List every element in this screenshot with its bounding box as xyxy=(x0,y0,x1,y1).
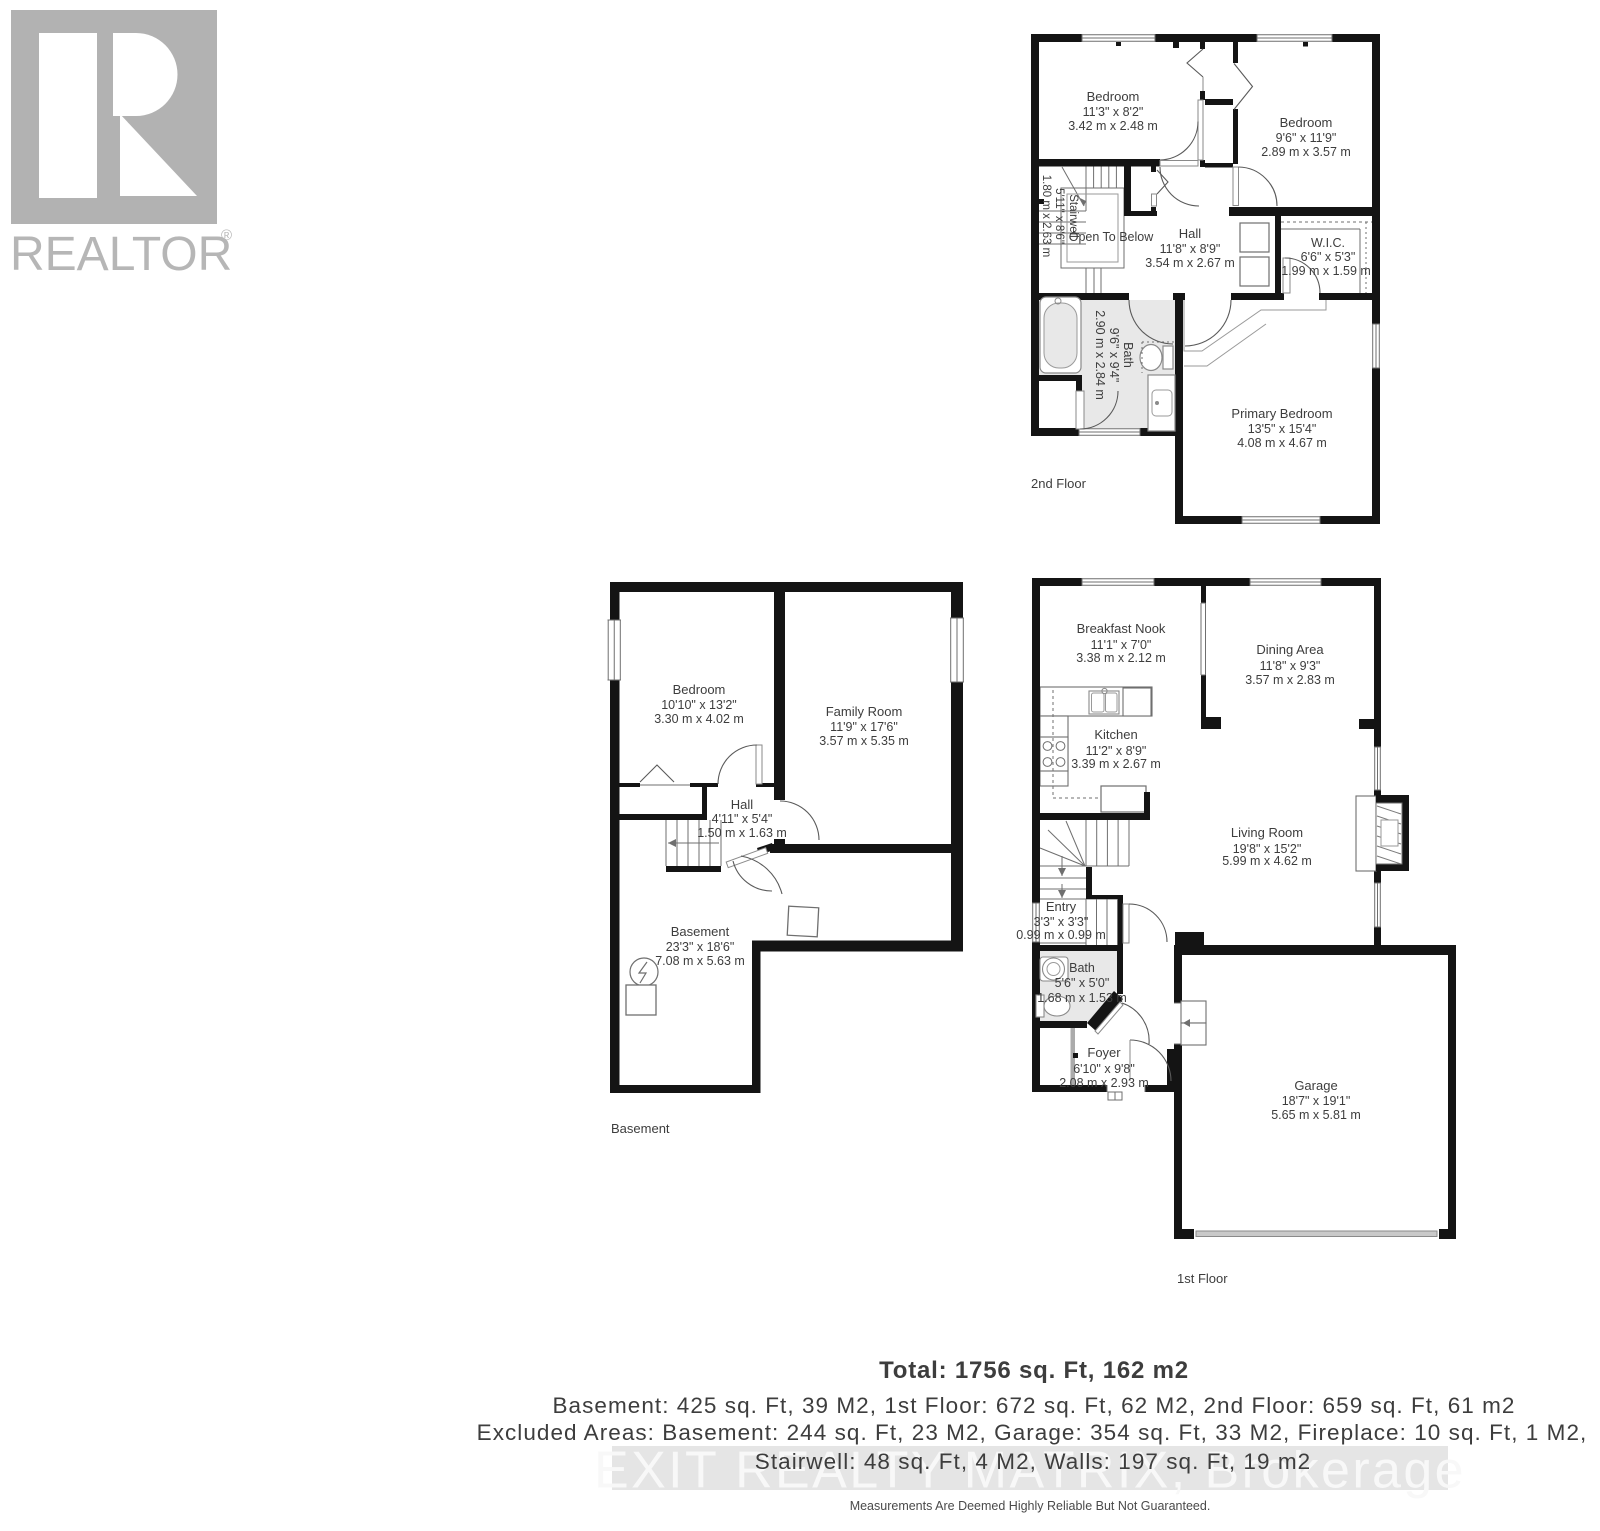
svg-text:9'6" x 11'9": 9'6" x 11'9" xyxy=(1276,131,1337,145)
svg-text:3.57 m x 5.35 m: 3.57 m x 5.35 m xyxy=(819,734,909,748)
svg-text:Living Room: Living Room xyxy=(1231,825,1303,840)
svg-text:23'3" x 18'6": 23'3" x 18'6" xyxy=(666,940,735,954)
svg-text:Entry: Entry xyxy=(1046,899,1077,914)
svg-text:7.08 m x 5.63 m: 7.08 m x 5.63 m xyxy=(655,954,745,968)
svg-text:11'1" x 7'0": 11'1" x 7'0" xyxy=(1091,638,1152,652)
svg-text:Primary Bedroom: Primary Bedroom xyxy=(1231,406,1332,421)
svg-text:9'6" x 9'4": 9'6" x 9'4" xyxy=(1107,328,1121,383)
svg-text:5.99 m x 4.62 m: 5.99 m x 4.62 m xyxy=(1222,854,1312,868)
svg-text:Bedroom: Bedroom xyxy=(1087,89,1140,104)
svg-text:3.54 m x 2.67 m: 3.54 m x 2.67 m xyxy=(1145,256,1235,270)
svg-text:0.99 m x 0.99 m: 0.99 m x 0.99 m xyxy=(1016,928,1106,942)
svg-text:6'10" x 9'8": 6'10" x 9'8" xyxy=(1073,1062,1135,1076)
svg-text:3'3" x 3'3": 3'3" x 3'3" xyxy=(1034,915,1089,929)
svg-text:5'6" x 5'0": 5'6" x 5'0" xyxy=(1055,976,1110,990)
svg-text:Basement: 425 sq. Ft, 39 M2, 1: Basement: 425 sq. Ft, 39 M2, 1st Floor: … xyxy=(552,1393,1515,1418)
svg-text:3.39 m x 2.67 m: 3.39 m x 2.67 m xyxy=(1071,757,1161,771)
svg-text:Open To Below: Open To Below xyxy=(1069,230,1155,244)
svg-text:1.68 m x 1.53 m: 1.68 m x 1.53 m xyxy=(1037,991,1127,1005)
svg-text:18'7" x 19'1": 18'7" x 19'1" xyxy=(1282,1094,1351,1108)
svg-text:6'6" x 5'3": 6'6" x 5'3" xyxy=(1301,250,1356,264)
svg-text:1.80 m x 2.63 m: 1.80 m x 2.63 m xyxy=(1040,175,1052,257)
svg-text:Foyer: Foyer xyxy=(1087,1045,1121,1060)
svg-text:2.90 m x 2.84 m: 2.90 m x 2.84 m xyxy=(1093,310,1107,400)
svg-text:Bath: Bath xyxy=(1121,342,1135,368)
svg-text:2.08 m x 2.93 m: 2.08 m x 2.93 m xyxy=(1059,1076,1149,1090)
svg-text:Basement: Basement xyxy=(611,1121,670,1136)
svg-text:Kitchen: Kitchen xyxy=(1094,727,1137,742)
svg-text:5.65 m x 5.81 m: 5.65 m x 5.81 m xyxy=(1271,1108,1361,1122)
svg-text:Stairwell: 48 sq. Ft, 4 M2, Wa: Stairwell: 48 sq. Ft, 4 M2, Walls: 197 s… xyxy=(755,1449,1311,1474)
svg-text:4'11" x 5'4": 4'11" x 5'4" xyxy=(712,812,773,826)
svg-text:3.42 m x 2.48 m: 3.42 m x 2.48 m xyxy=(1068,119,1158,133)
svg-text:Bedroom: Bedroom xyxy=(673,682,726,697)
svg-text:4.08 m x 4.67 m: 4.08 m x 4.67 m xyxy=(1237,436,1327,450)
svg-text:REALTOR: REALTOR xyxy=(10,228,232,281)
svg-text:Hall: Hall xyxy=(731,797,754,812)
svg-text:5'11" x 8'6": 5'11" x 8'6" xyxy=(1053,188,1065,244)
svg-text:Measurements Are Deemed Highly: Measurements Are Deemed Highly Reliable … xyxy=(850,1499,1211,1513)
svg-text:Family Room: Family Room xyxy=(826,704,903,719)
svg-text:3.38 m x 2.12 m: 3.38 m x 2.12 m xyxy=(1076,651,1166,665)
svg-text:13'5" x 15'4": 13'5" x 15'4" xyxy=(1248,422,1317,436)
svg-text:Bedroom: Bedroom xyxy=(1280,115,1333,130)
svg-text:Bath: Bath xyxy=(1069,961,1095,975)
svg-text:11'3" x 8'2": 11'3" x 8'2" xyxy=(1083,105,1144,119)
svg-text:W.I.C.: W.I.C. xyxy=(1311,236,1345,250)
svg-text:11'8" x 8'9": 11'8" x 8'9" xyxy=(1160,242,1221,256)
svg-text:2nd Floor: 2nd Floor xyxy=(1031,476,1087,491)
svg-text:2.89 m x 3.57 m: 2.89 m x 3.57 m xyxy=(1261,145,1351,159)
svg-text:11'8" x 9'3": 11'8" x 9'3" xyxy=(1260,659,1321,673)
svg-text:1st Floor: 1st Floor xyxy=(1177,1271,1228,1286)
svg-text:Breakfast Nook: Breakfast Nook xyxy=(1077,621,1166,636)
svg-text:1.99 m x 1.59 m: 1.99 m x 1.59 m xyxy=(1281,264,1371,278)
svg-text:Total: 1756 sq. Ft, 162 m2: Total: 1756 sq. Ft, 162 m2 xyxy=(879,1357,1189,1384)
svg-text:11'9" x 17'6": 11'9" x 17'6" xyxy=(830,720,898,734)
svg-text:3.57 m x 2.83 m: 3.57 m x 2.83 m xyxy=(1245,673,1335,687)
svg-text:11'2" x 8'9": 11'2" x 8'9" xyxy=(1086,744,1147,758)
svg-text:Excluded Areas: Basement: 244: Excluded Areas: Basement: 244 sq. Ft, 23… xyxy=(477,1420,1588,1445)
svg-text:Garage: Garage xyxy=(1294,1078,1337,1093)
svg-text:1.50 m x 1.63 m: 1.50 m x 1.63 m xyxy=(697,826,787,840)
svg-text:Dining Area: Dining Area xyxy=(1256,642,1324,657)
svg-text:10'10" x 13'2": 10'10" x 13'2" xyxy=(661,698,737,712)
svg-text:Hall: Hall xyxy=(1179,226,1202,241)
svg-text:3.30 m x 4.02 m: 3.30 m x 4.02 m xyxy=(654,712,744,726)
svg-text:®: ® xyxy=(221,227,232,244)
svg-text:Basement: Basement xyxy=(671,924,730,939)
